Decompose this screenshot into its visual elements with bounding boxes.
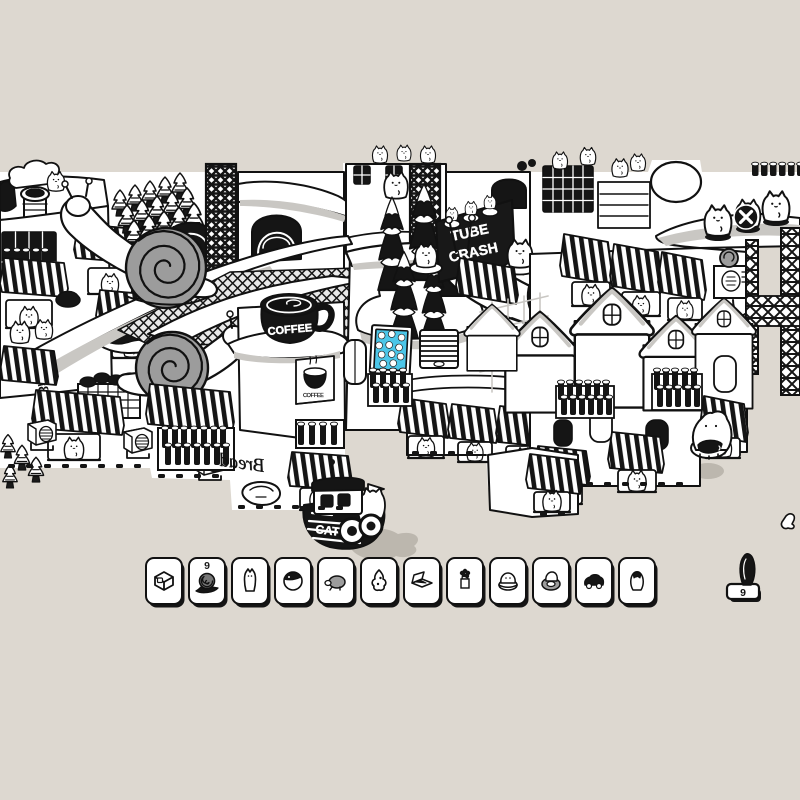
svg-text:COFFEE: COFFEE [303, 393, 324, 399]
svg-text:9: 9 [204, 560, 210, 572]
svg-text:CAT: CAT [315, 522, 341, 539]
svg-text:9: 9 [740, 587, 746, 599]
